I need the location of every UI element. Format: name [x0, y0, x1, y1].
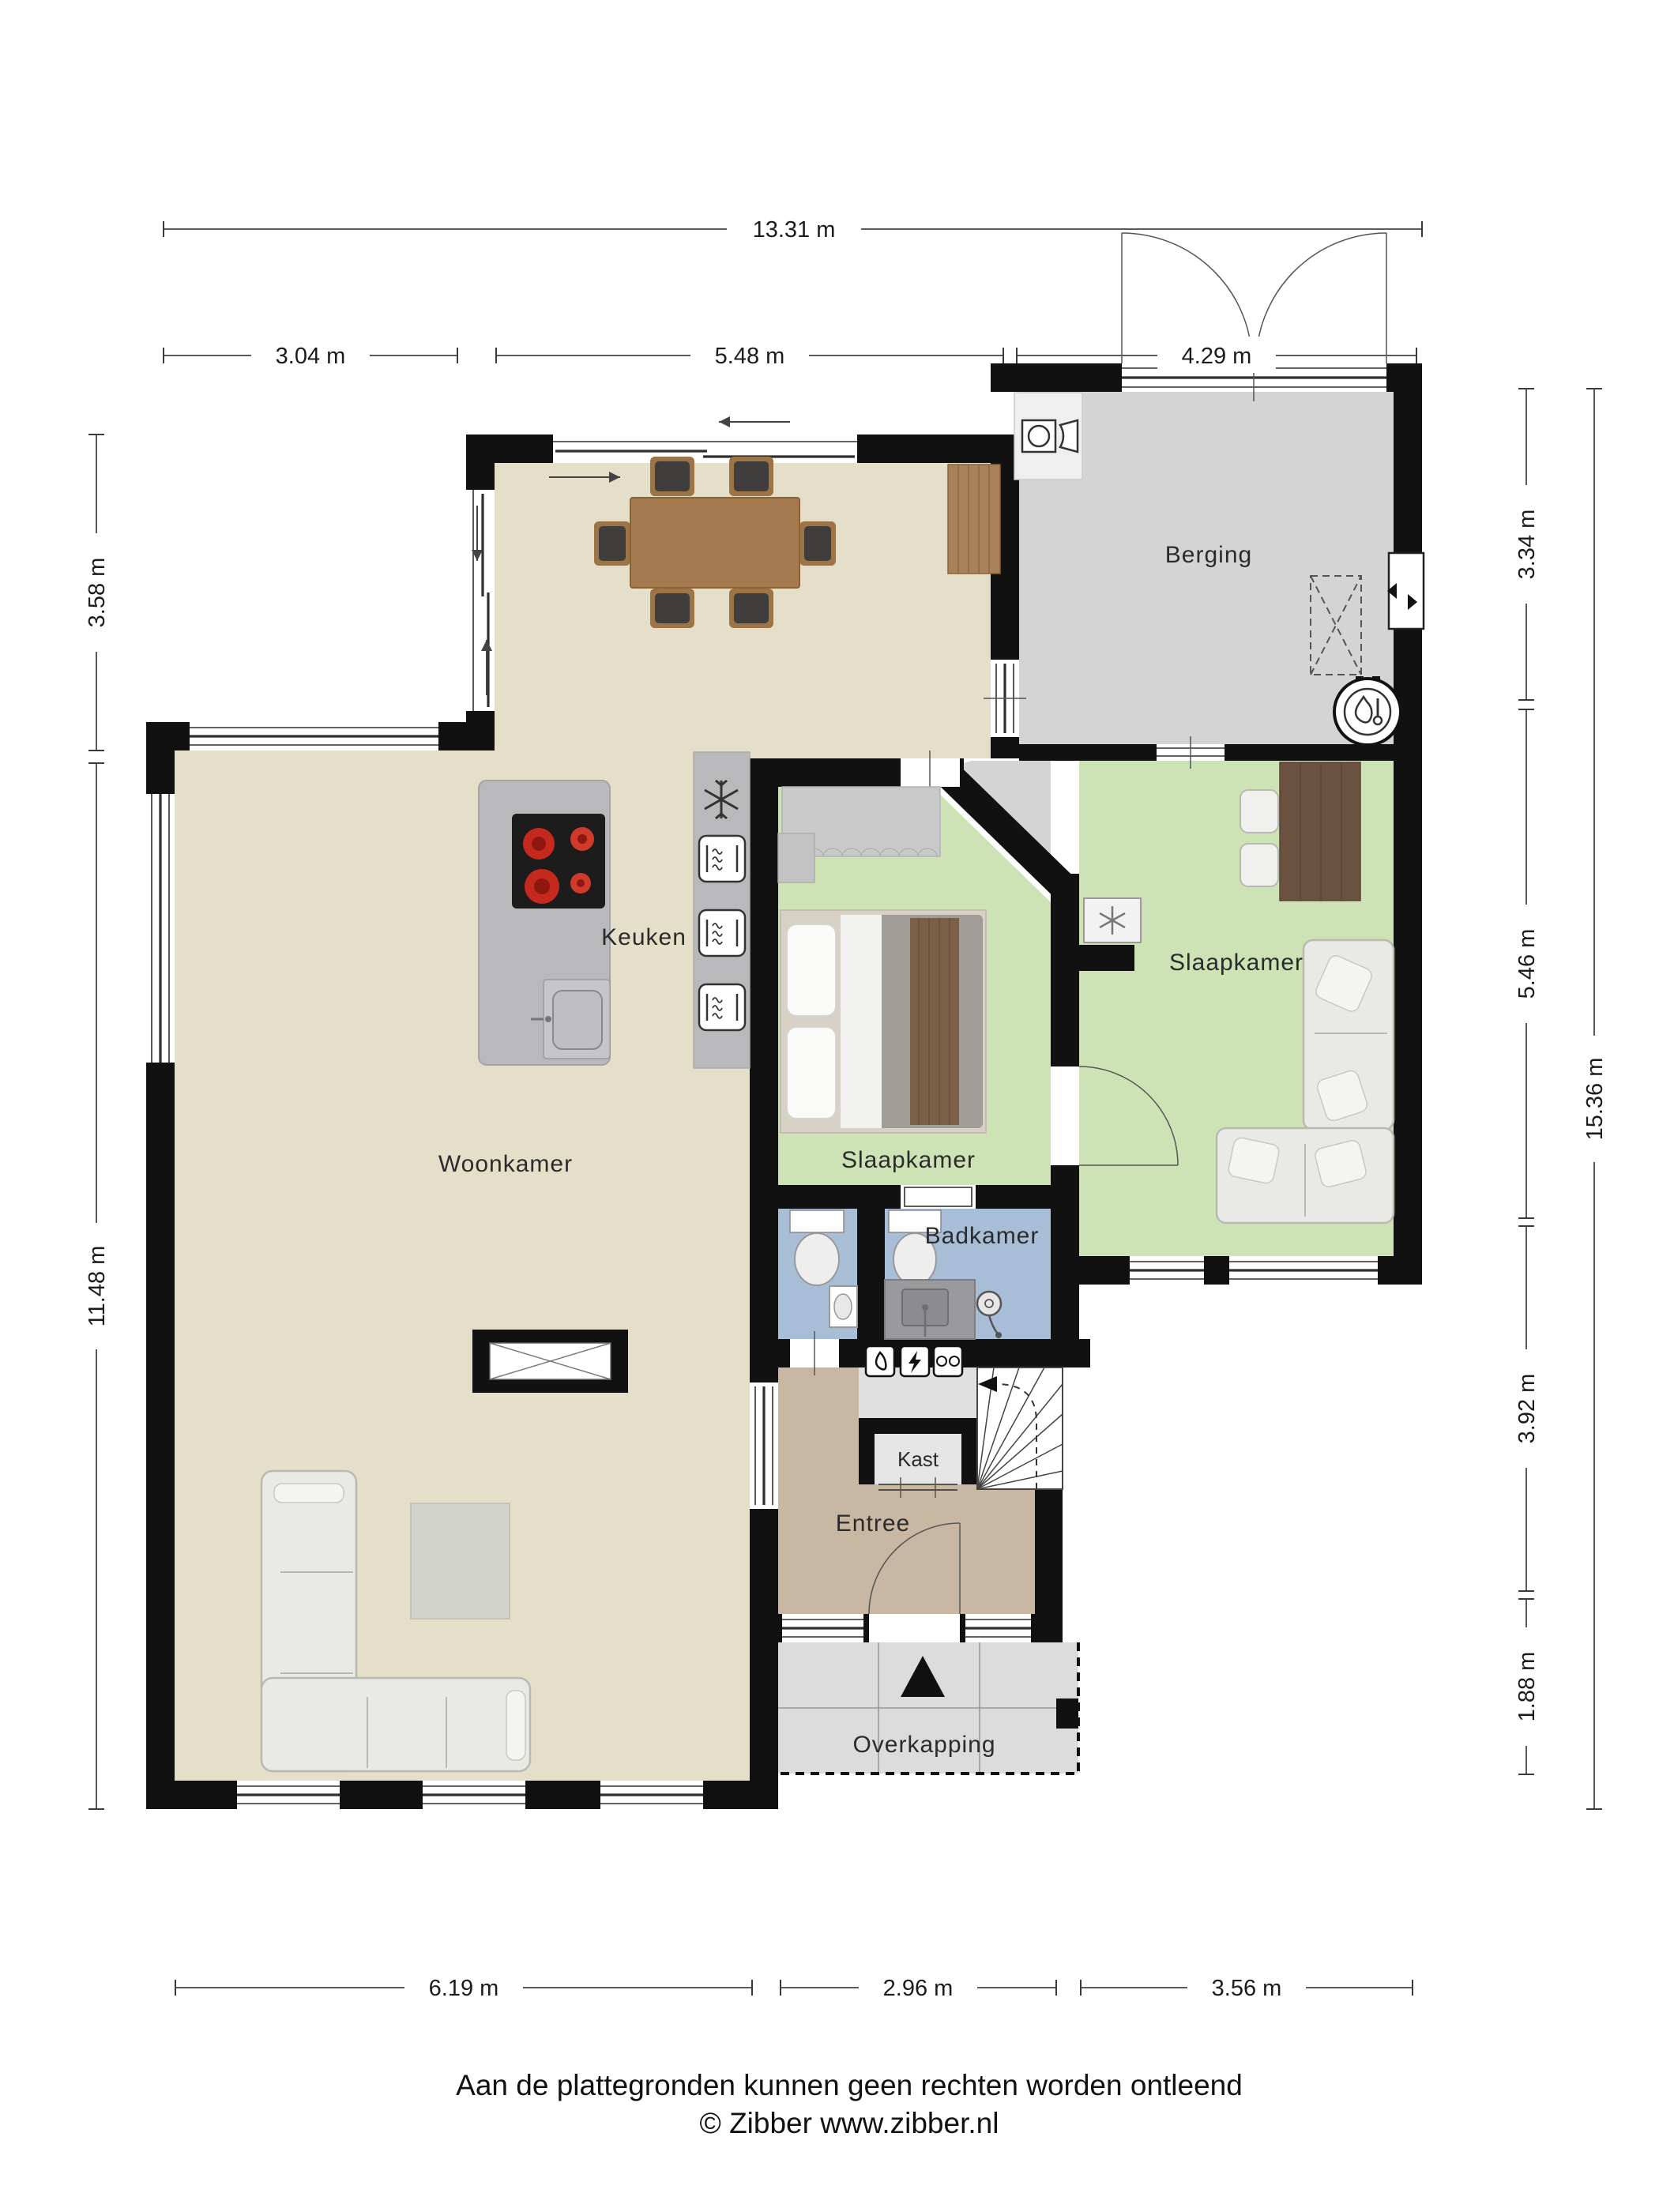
svg-text:4.29 m: 4.29 m: [1182, 344, 1252, 369]
label-slaapkamer-right: Slaapkamer: [1169, 950, 1303, 976]
staircase: [977, 1367, 1063, 1489]
window-living-bottom-1: [237, 1781, 340, 1809]
oven-icon: [699, 910, 745, 956]
wall-right-outer: [1394, 363, 1422, 1285]
dining-table: [630, 498, 799, 588]
svg-text:5.48 m: 5.48 m: [715, 344, 785, 369]
dim-bottom-seg-1: 6.19 m: [175, 1969, 752, 2005]
svg-text:1.88 m: 1.88 m: [1514, 1652, 1540, 1722]
dim-right-seg-1: 3.34 m: [1508, 389, 1544, 700]
svg-text:3.34 m: 3.34 m: [1514, 510, 1540, 580]
oven-icon: [699, 984, 745, 1030]
label-entree: Entree: [836, 1510, 910, 1537]
label-overkapping: Overkapping: [852, 1732, 995, 1758]
label-badkamer: Badkamer: [925, 1223, 1040, 1249]
desk: [1280, 762, 1360, 901]
toilet-icon: [790, 1210, 844, 1285]
dim-right-total: 15.36 m: [1576, 389, 1612, 1809]
dim-right-seg-4: 1.88 m: [1508, 1599, 1544, 1774]
bed: [781, 910, 986, 1133]
label-kast: Kast: [897, 1447, 939, 1471]
window-living-bottom-2: [423, 1781, 525, 1809]
wall-corridor-right: [750, 758, 778, 1809]
kitchen-appliance-column: [694, 752, 750, 1068]
door-bathroom: [901, 1185, 976, 1209]
svg-text:3.92 m: 3.92 m: [1514, 1374, 1540, 1444]
water-meter-icon: [866, 1346, 894, 1376]
svg-text:11.48 m: 11.48 m: [85, 1246, 110, 1327]
footer: Aan de plattegronden kunnen geen rechten…: [456, 2069, 1243, 2139]
svg-text:5.46 m: 5.46 m: [1514, 929, 1540, 999]
vanity-sink: [885, 1280, 975, 1339]
wall-stub-bedroom: [1051, 945, 1134, 971]
window-living-left: [146, 794, 175, 1063]
canopy-post: [1056, 1698, 1078, 1729]
desk-chair: [1240, 790, 1278, 833]
label-keuken: Keuken: [601, 924, 687, 950]
label-woonkamer: Woonkamer: [438, 1151, 573, 1177]
sliding-window-kitchen-left: [466, 490, 495, 711]
window-bedroom-bottom-1: [1130, 1256, 1204, 1285]
fireplace: [472, 1330, 628, 1393]
window-entree-front-2: [965, 1614, 1031, 1642]
kitchen-island: [479, 781, 610, 1065]
washing-machine-icon: [1022, 420, 1078, 452]
window-bedroom-bottom-2: [1229, 1256, 1378, 1285]
dim-bottom-seg-3: 3.56 m: [1081, 1969, 1413, 2005]
cooktop-icon: [512, 814, 605, 908]
window-entree-front-1: [782, 1614, 863, 1642]
oven-icon: [699, 836, 745, 882]
footer-copyright: © Zibber www.zibber.nl: [700, 2107, 999, 2139]
meter-cupboard: [866, 1346, 962, 1376]
dim-top-seg-2: 5.48 m: [496, 337, 1003, 373]
dim-right-seg-3: 3.92 m: [1508, 1226, 1544, 1591]
sink-small-icon: [829, 1286, 857, 1327]
window-living-bottom-3: [600, 1781, 703, 1809]
bedside-desk: [778, 833, 814, 882]
svg-text:13.31 m: 13.31 m: [753, 217, 836, 243]
svg-text:2.96 m: 2.96 m: [883, 1976, 954, 2001]
svg-text:3.58 m: 3.58 m: [85, 558, 110, 628]
svg-text:6.19 m: 6.19 m: [429, 1976, 499, 2001]
boiler-icon: [1334, 678, 1401, 745]
door-berging-right: [1387, 553, 1424, 629]
meter-icon: [934, 1346, 962, 1376]
slide-arrow-left-icon: [719, 416, 790, 427]
dim-bottom-seg-2: 2.96 m: [781, 1969, 1056, 2005]
dim-right-seg-2: 5.46 m: [1508, 709, 1544, 1218]
label-berging: Berging: [1165, 542, 1252, 568]
svg-text:15.36 m: 15.36 m: [1582, 1058, 1608, 1141]
desk-chair: [1240, 844, 1278, 886]
sideboard: [948, 465, 1000, 574]
label-slaapkamer-middle: Slaapkamer: [841, 1147, 976, 1173]
dim-top-total: 13.31 m: [164, 210, 1422, 246]
svg-text:3.56 m: 3.56 m: [1212, 1976, 1282, 2001]
dim-left-seg-1: 3.58 m: [78, 434, 115, 750]
freezer-icon: [1084, 898, 1141, 942]
svg-text:3.04 m: 3.04 m: [276, 344, 346, 369]
dim-top-seg-1: 3.04 m: [164, 337, 457, 373]
wall-toilet-bath: [857, 1209, 885, 1339]
floorplan-canvas: Berging Keuken Woonkamer Slaapkamer Slaa…: [0, 0, 1659, 2212]
electric-meter-icon: [901, 1346, 929, 1376]
window-living-top: [190, 722, 438, 750]
french-doors-berging: [1122, 233, 1386, 401]
footer-disclaimer: Aan de plattegronden kunnen geen rechten…: [456, 2069, 1243, 2101]
coffee-table: [411, 1503, 510, 1619]
dim-left-seg-2: 11.48 m: [78, 763, 115, 1809]
opening-living-entree: [750, 1382, 778, 1509]
